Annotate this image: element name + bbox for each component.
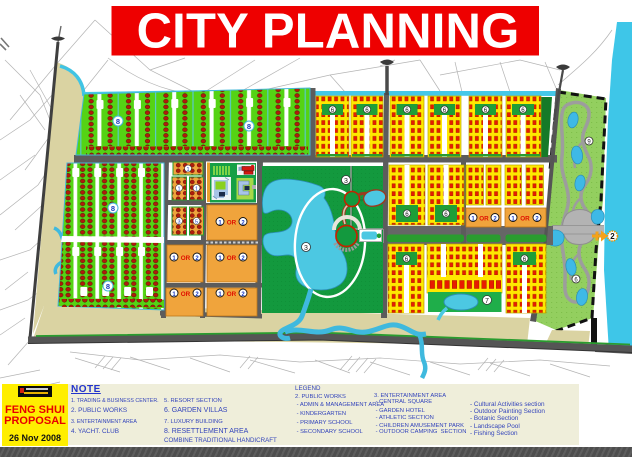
svg-text:6: 6 [331,107,335,114]
svg-text:3: 3 [177,220,180,226]
svg-text:6: 6 [523,256,527,263]
svg-text:6: 6 [405,107,409,114]
svg-text:OR: OR [181,291,191,298]
svg-text:6: 6 [521,107,525,114]
svg-text:6: 6 [405,256,409,263]
svg-text:1: 1 [177,187,180,193]
svg-text:2: 2 [610,232,615,241]
svg-text:6: 6 [405,211,409,218]
svg-text:6: 6 [444,211,448,218]
svg-text:6: 6 [443,107,447,114]
svg-text:OR: OR [227,255,237,262]
svg-text:8: 8 [247,122,251,131]
svg-text:8: 8 [116,117,120,126]
svg-text:6: 6 [365,107,369,114]
svg-text:OR: OR [227,291,237,298]
svg-text:CITY PLANNING: CITY PLANNING [137,5,520,59]
svg-text:OR: OR [479,216,489,223]
svg-text:1: 1 [186,167,189,173]
svg-text:6: 6 [484,107,488,114]
svg-text:OR: OR [181,255,191,262]
svg-text:8: 8 [106,282,110,291]
svg-text:8: 8 [111,204,115,213]
svg-text:OR: OR [520,216,530,223]
svg-text:3: 3 [304,245,308,252]
svg-text:OR: OR [227,220,237,227]
svg-text:7: 7 [485,298,489,305]
svg-text:5: 5 [195,220,198,226]
svg-text:1: 1 [195,187,198,193]
svg-text:3: 3 [344,178,348,185]
